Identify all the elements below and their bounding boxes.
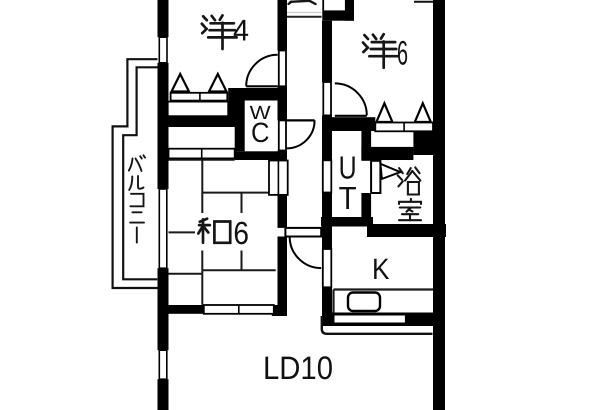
svg-text:T: T <box>339 180 357 216</box>
svg-text:4: 4 <box>233 14 249 47</box>
svg-text:C: C <box>251 117 270 148</box>
svg-text:K: K <box>372 253 390 286</box>
svg-text:6: 6 <box>397 34 408 72</box>
svg-text:6: 6 <box>233 215 249 251</box>
svg-text:LD10: LD10 <box>263 350 333 386</box>
